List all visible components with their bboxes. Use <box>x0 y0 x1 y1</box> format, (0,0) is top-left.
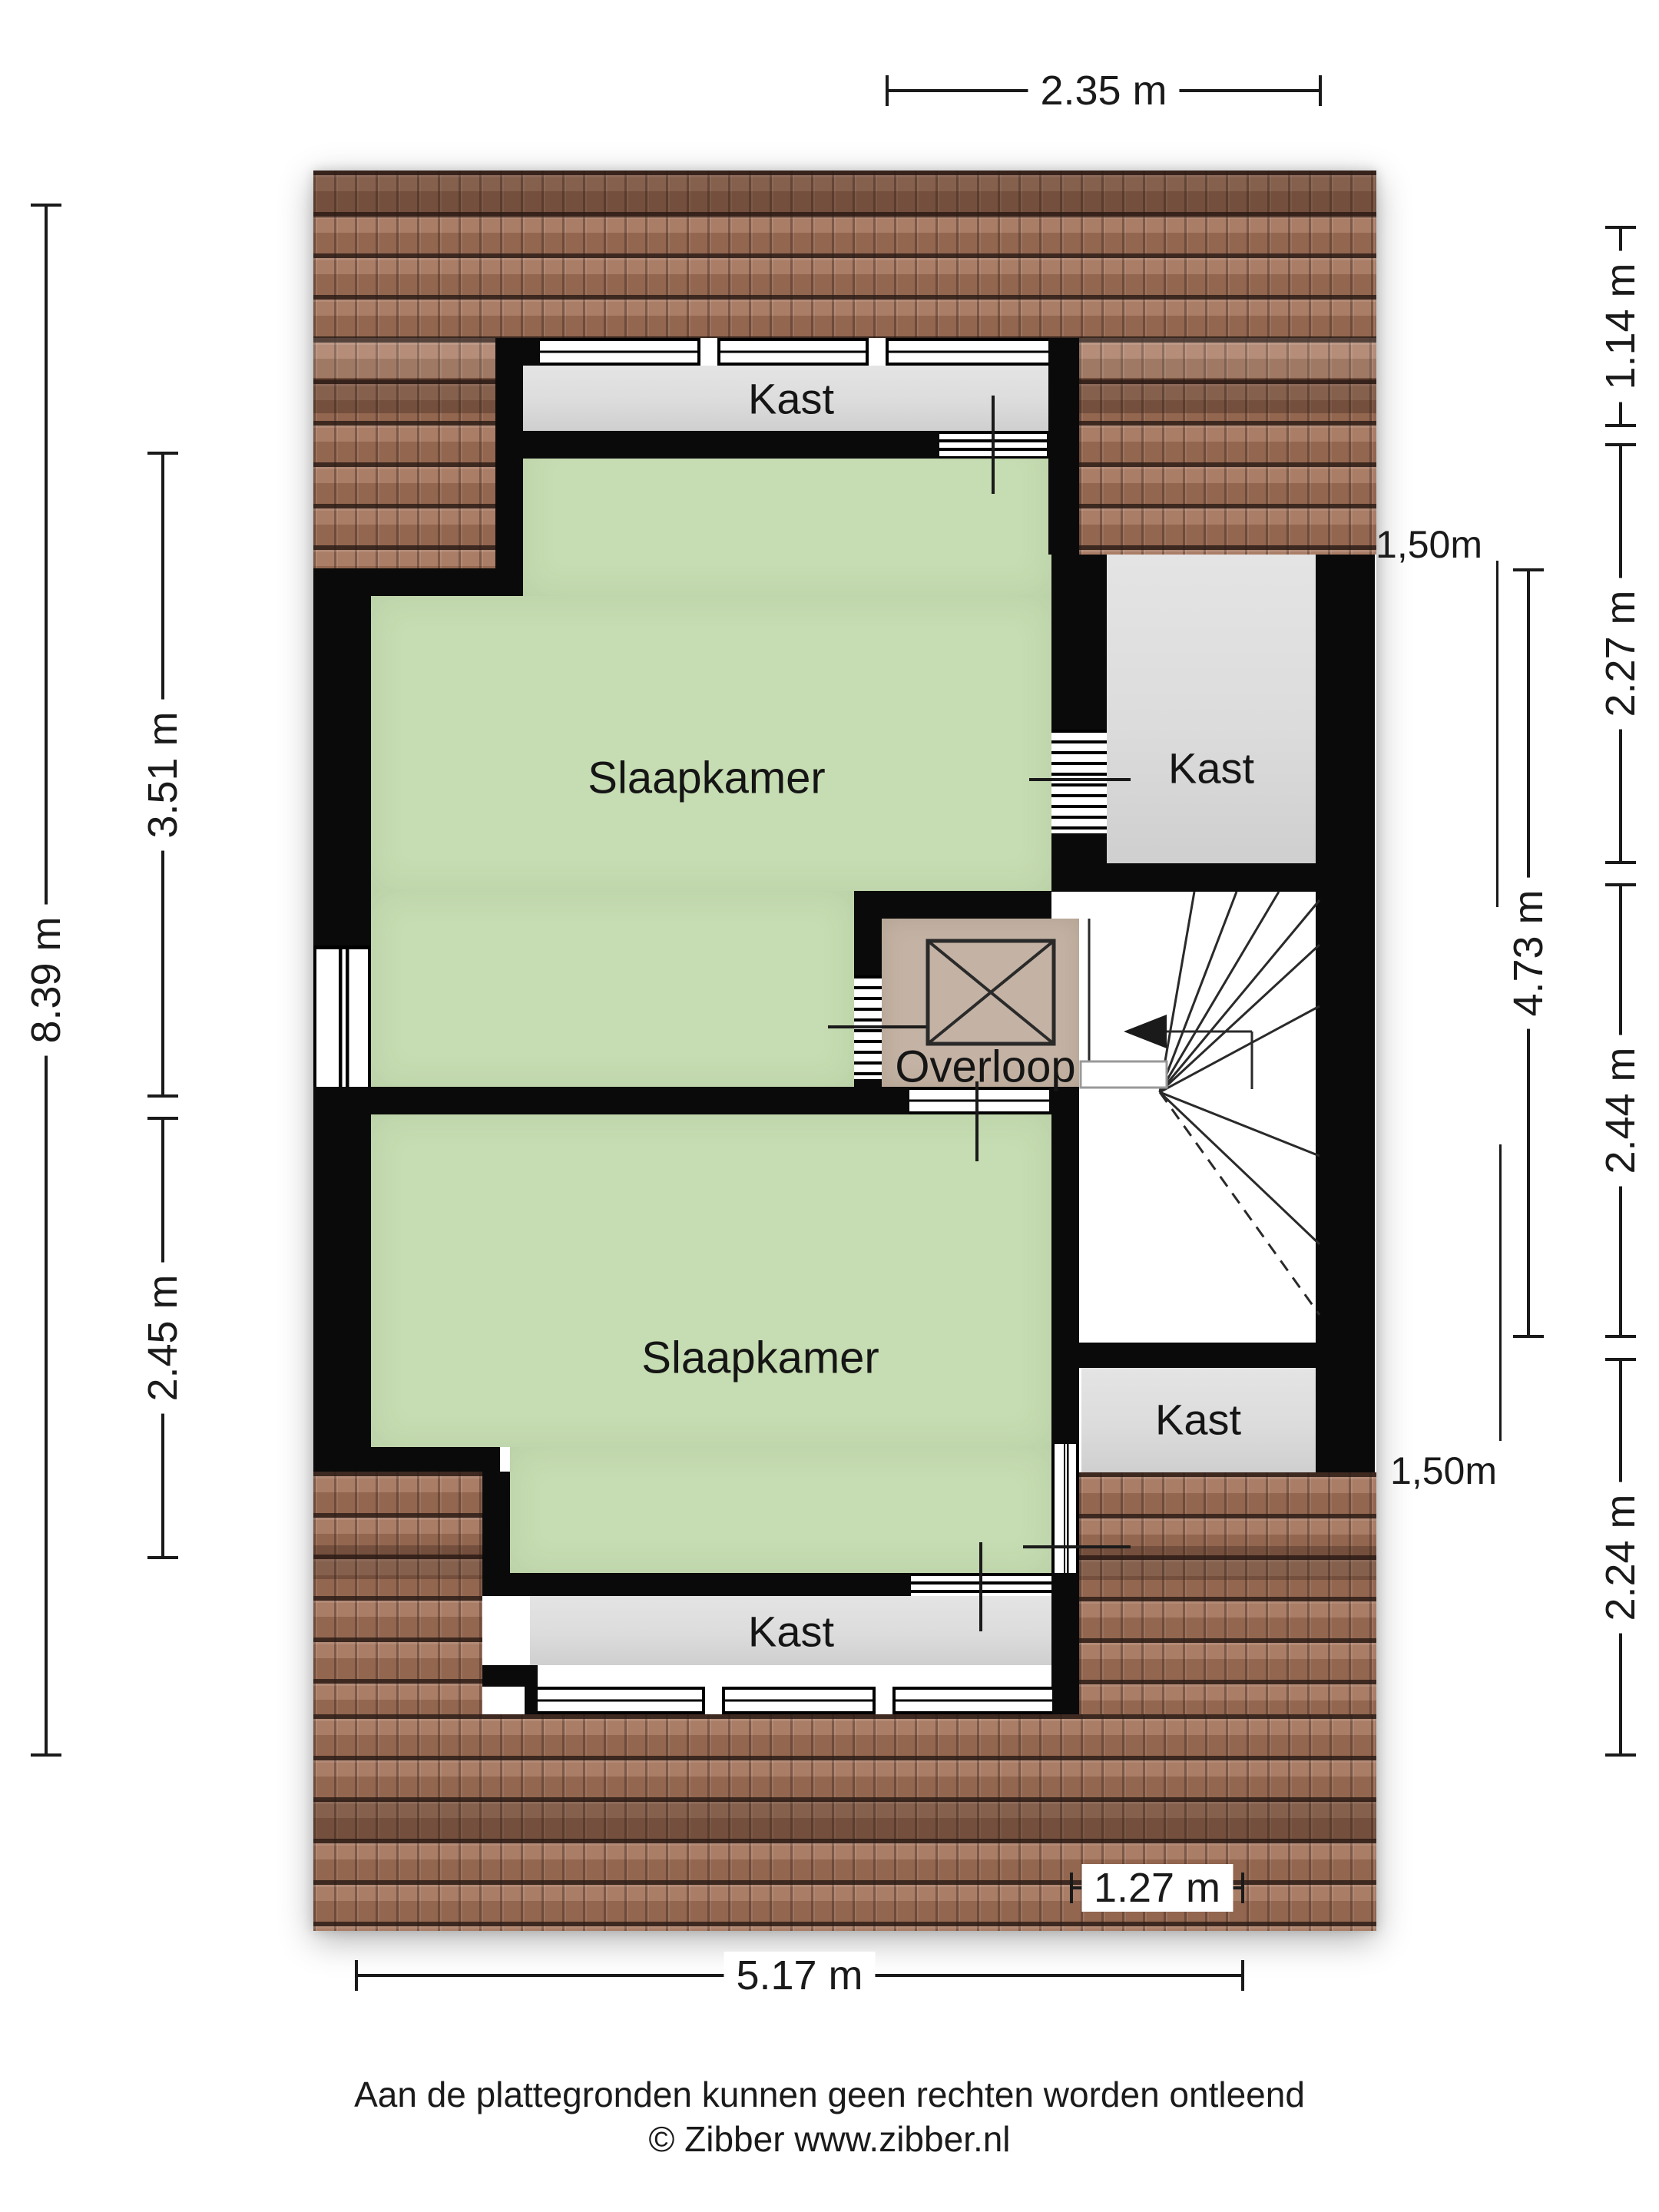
door-tick <box>979 1542 982 1631</box>
window <box>313 945 371 1094</box>
wall <box>482 1665 538 1687</box>
roof-top-left <box>313 338 495 568</box>
height-marker-label-lower: 1,50m <box>1361 1449 1526 1493</box>
dimension-bottom-total: 5.17 m <box>355 1960 1244 1991</box>
footer-copyright: © Zibber www.zibber.nl <box>0 2118 1659 2160</box>
room-label-bedroom-top: Slaapkamer <box>588 753 825 804</box>
bedroom-bottom-floor <box>371 1114 1051 1447</box>
dimension-right-lower: 2.24 m <box>1605 1358 1636 1757</box>
roof-bottom-right <box>1079 1472 1376 1714</box>
wall <box>523 338 540 366</box>
window <box>540 338 1048 366</box>
bedroom-top-floor <box>371 891 854 1087</box>
height-marker-label-upper: 1,50m <box>1317 522 1482 567</box>
wall <box>495 338 523 596</box>
wall <box>313 568 371 945</box>
window <box>538 1687 1052 1714</box>
window-tick <box>975 1081 979 1161</box>
roof-top <box>313 171 1376 338</box>
stairs-direction-arrow-icon <box>1124 1015 1167 1048</box>
wall <box>1051 555 1107 892</box>
height-marker-line-lower <box>1499 1144 1502 1441</box>
window <box>1051 1444 1079 1573</box>
dimension-right-middle: 2.44 m <box>1605 883 1636 1338</box>
dimension-top-width: 2.35 m <box>886 75 1322 106</box>
wall <box>495 431 939 459</box>
stairs <box>1079 891 1321 1344</box>
dimension-right-roof: 1.14 m <box>1605 226 1636 427</box>
room-label-landing: Overloop <box>895 1041 1075 1093</box>
dimension-left-upper: 3.51 m <box>147 452 178 1098</box>
closet-gap <box>500 1596 530 1665</box>
room-label-closet-right: Kast <box>1168 743 1254 793</box>
closet-right-floor <box>1107 555 1316 863</box>
dimension-right-inner-total: 4.73 m <box>1513 568 1544 1338</box>
wall <box>1052 1687 1079 1714</box>
skylight-icon <box>926 939 1056 1046</box>
wall <box>1047 431 1079 459</box>
dimension-bottom-inner: 1.27 m <box>1070 1873 1244 1903</box>
wall <box>854 891 1051 919</box>
floorplan-page: Kast Slaapkamer Kast Overloop Slaapkamer… <box>0 0 1659 2212</box>
door-tick <box>1029 778 1131 781</box>
wall <box>313 1447 500 1472</box>
wall <box>1051 1573 1079 1687</box>
height-marker-line-upper <box>1496 561 1498 907</box>
wall <box>525 1687 538 1714</box>
door-tick <box>828 1025 926 1028</box>
dimension-left-total: 8.39 m <box>31 204 61 1757</box>
bedroom-top-floor <box>371 596 1051 891</box>
wall <box>313 1087 882 1114</box>
window-tick <box>1023 1545 1131 1548</box>
wall <box>1316 555 1375 1472</box>
room-label-closet-top: Kast <box>748 374 834 424</box>
room-label-closet-bottom: Kast <box>748 1607 834 1657</box>
door-opening <box>1051 730 1107 833</box>
bedroom-bottom-floor <box>510 1447 1051 1573</box>
roof-bottom-left <box>313 1472 482 1714</box>
wall <box>313 1087 371 1447</box>
room-label-closet-bottom-small: Kast <box>1155 1395 1241 1445</box>
stair-door-leaf <box>1081 1061 1167 1088</box>
wall <box>1051 1343 1375 1368</box>
door-tick <box>992 396 995 494</box>
dimension-left-lower: 2.45 m <box>147 1117 178 1559</box>
room-label-bedroom-bottom: Slaapkamer <box>641 1333 879 1384</box>
footer-disclaimer: Aan de plattegronden kunnen geen rechten… <box>0 2074 1659 2115</box>
wall <box>482 1573 911 1596</box>
dimension-right-upper: 2.27 m <box>1605 443 1636 864</box>
